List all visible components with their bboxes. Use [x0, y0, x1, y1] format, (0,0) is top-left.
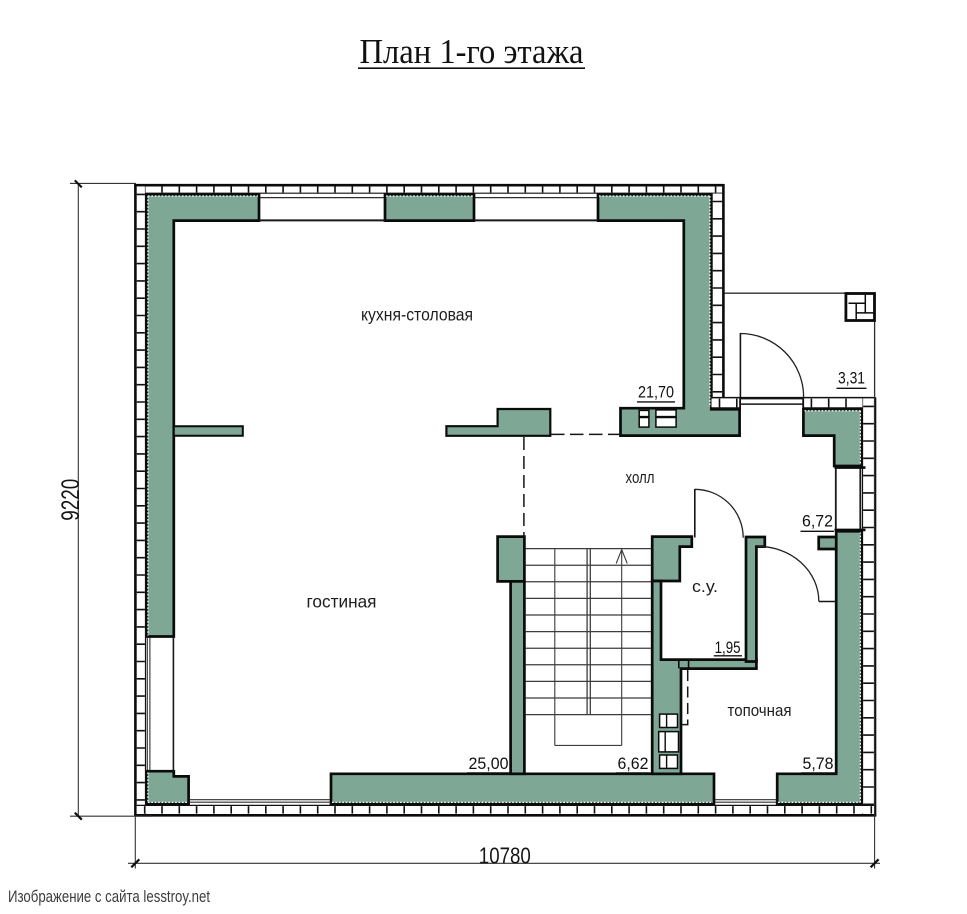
svg-text:Изображение с сайта lesstroy.n: Изображение с сайта lesstroy.net — [8, 888, 210, 906]
svg-text:План 1-го этажа: План 1-го этажа — [360, 32, 584, 71]
svg-text:с.у.: с.у. — [692, 578, 718, 596]
svg-text:21,70: 21,70 — [638, 383, 674, 402]
svg-text:гостиная: гостиная — [307, 592, 377, 612]
svg-text:6,62: 6,62 — [618, 754, 649, 773]
svg-text:6,72: 6,72 — [802, 512, 833, 531]
svg-text:5,78: 5,78 — [803, 754, 834, 773]
svg-text:кухня-столовая: кухня-столовая — [361, 305, 473, 325]
svg-text:10780: 10780 — [479, 843, 531, 869]
svg-text:топочная: топочная — [728, 702, 792, 720]
svg-text:3,31: 3,31 — [838, 369, 865, 388]
svg-text:холл: холл — [626, 469, 655, 487]
svg-text:1,95: 1,95 — [715, 638, 741, 657]
svg-text:25,00: 25,00 — [469, 754, 509, 773]
svg-text:9220: 9220 — [57, 479, 85, 521]
